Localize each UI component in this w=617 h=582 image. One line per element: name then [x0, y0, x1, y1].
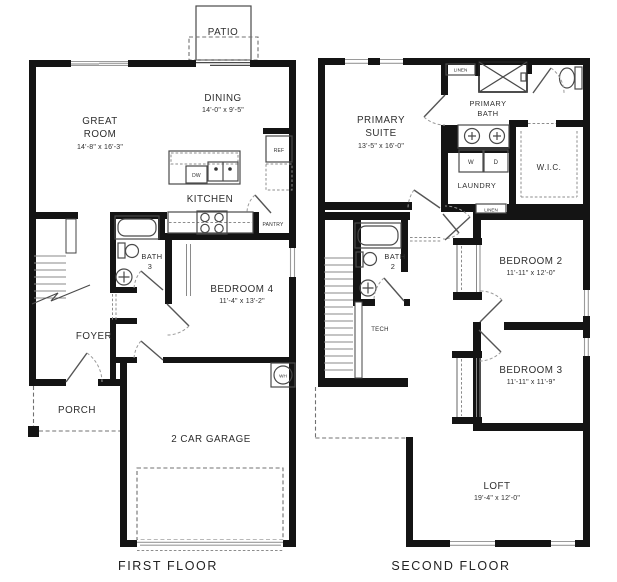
first-floor-labels: PATIO DINING 14'-0" x 9'-5" GREAT ROOM 1… [58, 27, 287, 573]
toilet-room-door [533, 68, 551, 93]
first-floor-title: FIRST FLOOR [118, 559, 218, 573]
wic-details [521, 124, 577, 198]
primary-bath-door [424, 95, 445, 117]
bath3-label-2: 3 [148, 262, 153, 271]
dining-dims: 14'-0" x 9'-5" [202, 107, 244, 114]
bedroom4-closet [187, 244, 191, 296]
sink [126, 245, 139, 258]
primary-suite-dims: 13'-5" x 16'-0" [358, 143, 404, 150]
great-room-label-2: ROOM [84, 129, 116, 140]
second-floor-plan: PRIMARY SUITE 13'-5" x 16'-0" LINEN PRIM… [316, 58, 591, 573]
bath2-door [384, 278, 404, 301]
pantry-label: PANTRY [262, 222, 283, 228]
bedroom2-dims: 11'-11" x 12'-0" [506, 270, 555, 277]
sink [364, 253, 377, 266]
foyer-label: FOYER [76, 331, 112, 342]
primary-suite-label-2: SUITE [365, 128, 396, 139]
floor-plan-page: PATIO DINING 14'-0" x 9'-5" GREAT ROOM 1… [0, 0, 617, 582]
bath3-door [141, 271, 163, 290]
hall-opening [410, 238, 441, 242]
primary-suite-label-1: PRIMARY [357, 115, 405, 126]
vanity [458, 125, 509, 148]
kitchen-counter [168, 211, 253, 234]
kitchen-island [169, 151, 240, 184]
garage-entry-door [141, 341, 163, 360]
wic-label: W.I.C. [537, 163, 562, 172]
pantry-door [255, 195, 271, 213]
second-floor-labels: PRIMARY SUITE 13'-5" x 16'-0" LINEN PRIM… [357, 68, 563, 574]
kitchen-label: KITCHEN [187, 194, 234, 205]
porch-label: PORCH [58, 405, 96, 416]
ref-label: REF [274, 148, 285, 154]
bath3-fixtures [115, 216, 159, 285]
bedroom4-dims: 11'-4" x 13'-2" [219, 298, 265, 305]
bedroom3-label: BEDROOM 3 [499, 365, 562, 376]
bedroom4-door [167, 304, 189, 326]
bedroom2-closet [457, 245, 480, 292]
dining-label: DINING [204, 93, 241, 104]
bedroom3-closet [457, 358, 480, 417]
sink-cabinet [118, 243, 125, 258]
second-floor-title: SECOND FLOOR [391, 559, 510, 573]
dw-label: DW [192, 173, 201, 179]
linen-top-label: LINEN [454, 68, 468, 73]
first-floor-plan: PATIO DINING 14'-0" x 9'-5" GREAT ROOM 1… [28, 6, 296, 573]
refrigerator [266, 136, 292, 190]
hall-bedroom3-door [480, 300, 502, 322]
primary-bath-label-1: PRIMARY [469, 99, 506, 108]
roof-below-outline [316, 387, 407, 438]
linen-hall-label: LINEN [484, 208, 498, 213]
floor-plan-drawing: PATIO DINING 14'-0" x 9'-5" GREAT ROOM 1… [0, 0, 617, 582]
bath2-label-1: BATH [384, 252, 405, 261]
primary-bath-label-2: BATH [477, 109, 498, 118]
loft-dims: 19'-4" x 12'-0" [474, 495, 520, 502]
wh-label: WH [279, 374, 287, 379]
garage-details [137, 363, 295, 551]
garage-parking-outline [137, 468, 283, 540]
patio-label: PATIO [208, 27, 238, 38]
garage-label: 2 CAR GARAGE [171, 434, 251, 445]
great-room-label-1: GREAT [82, 116, 118, 127]
bath3-label-1: BATH [141, 252, 162, 261]
toilet [560, 68, 575, 88]
bath2-label-2: 2 [391, 262, 396, 271]
loft-label: LOFT [483, 481, 510, 492]
laundry-label: LAUNDRY [458, 181, 497, 190]
dryer-label: D [494, 160, 499, 166]
great-room-dims: 14'-8" x 16'-3" [77, 144, 123, 151]
washer-label: W [468, 160, 474, 166]
first-floor-windows [71, 60, 296, 277]
bedroom3-dims: 11'-11" x 11'-9" [507, 379, 556, 386]
tech-label: TECH [371, 327, 389, 333]
primary-suite-door [414, 190, 440, 208]
bedroom2-label: BEDROOM 2 [499, 256, 562, 267]
hall-opening [113, 294, 117, 320]
bedroom3-door [479, 330, 501, 352]
bedroom4-label: BEDROOM 4 [210, 284, 273, 295]
front-door [66, 353, 87, 382]
first-floor-stairs [32, 219, 90, 304]
